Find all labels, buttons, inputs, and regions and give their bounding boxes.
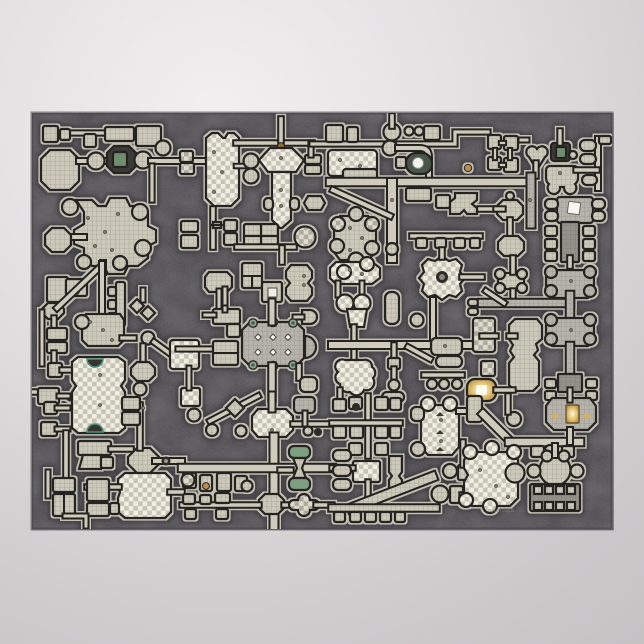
svg-text:Dyson Logos: Dyson Logos (488, 508, 515, 513)
